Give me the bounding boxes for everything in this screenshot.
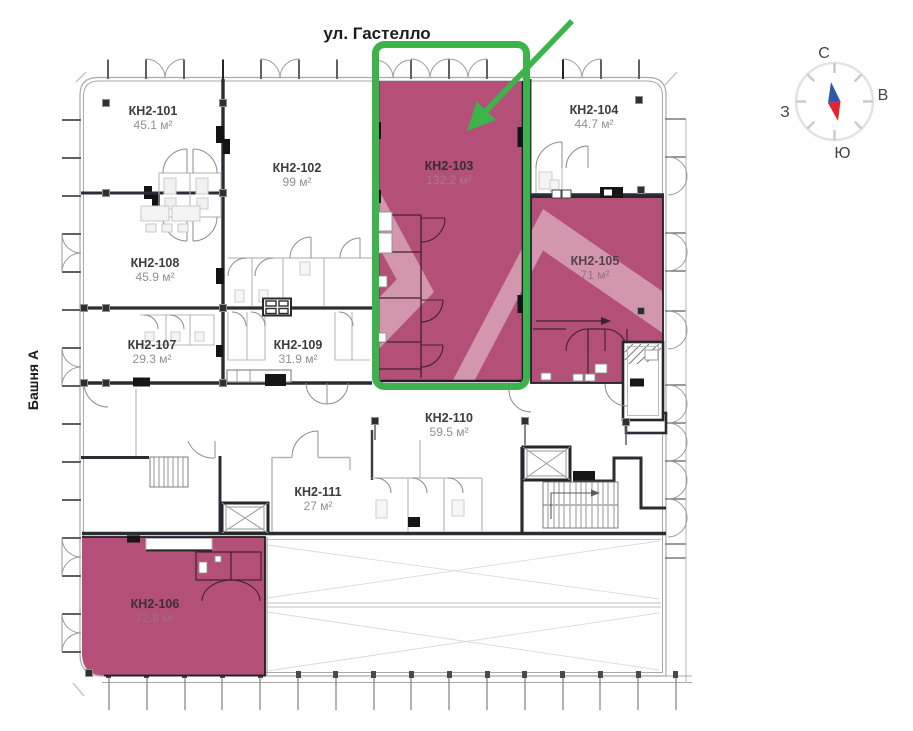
svg-text:Башня А: Башня А xyxy=(25,350,41,410)
svg-text:71 м²: 71 м² xyxy=(581,268,610,282)
svg-text:72.8 м²: 72.8 м² xyxy=(136,611,175,625)
svg-text:КН2-103: КН2-103 xyxy=(425,159,474,173)
svg-text:44.7 м²: 44.7 м² xyxy=(575,117,614,131)
svg-text:КН2-109: КН2-109 xyxy=(274,338,323,352)
svg-text:КН2-107: КН2-107 xyxy=(128,338,177,352)
svg-text:Ю: Ю xyxy=(834,145,850,162)
svg-text:КН2-108: КН2-108 xyxy=(131,256,180,270)
svg-text:В: В xyxy=(878,87,889,104)
svg-text:КН2-106: КН2-106 xyxy=(131,597,180,611)
svg-text:45.1 м²: 45.1 м² xyxy=(134,118,173,132)
svg-text:45.9 м²: 45.9 м² xyxy=(136,270,175,284)
svg-text:27 м²: 27 м² xyxy=(304,499,333,513)
svg-text:132.2 м²: 132.2 м² xyxy=(426,173,472,187)
svg-text:З: З xyxy=(780,104,790,121)
svg-text:ул. Гастелло: ул. Гастелло xyxy=(323,24,430,43)
svg-text:КН2-102: КН2-102 xyxy=(273,161,322,175)
svg-text:29.3 м²: 29.3 м² xyxy=(133,352,172,366)
svg-text:31.9 м²: 31.9 м² xyxy=(279,352,318,366)
svg-text:КН2-111: КН2-111 xyxy=(294,485,341,499)
svg-text:КН2-101: КН2-101 xyxy=(129,104,178,118)
svg-text:КН2-104: КН2-104 xyxy=(570,103,619,117)
svg-text:КН2-105: КН2-105 xyxy=(571,254,620,268)
svg-text:С: С xyxy=(818,45,830,62)
svg-text:КН2-110: КН2-110 xyxy=(425,411,473,425)
svg-text:59.5 м²: 59.5 м² xyxy=(430,425,469,439)
svg-text:99 м²: 99 м² xyxy=(283,175,312,189)
